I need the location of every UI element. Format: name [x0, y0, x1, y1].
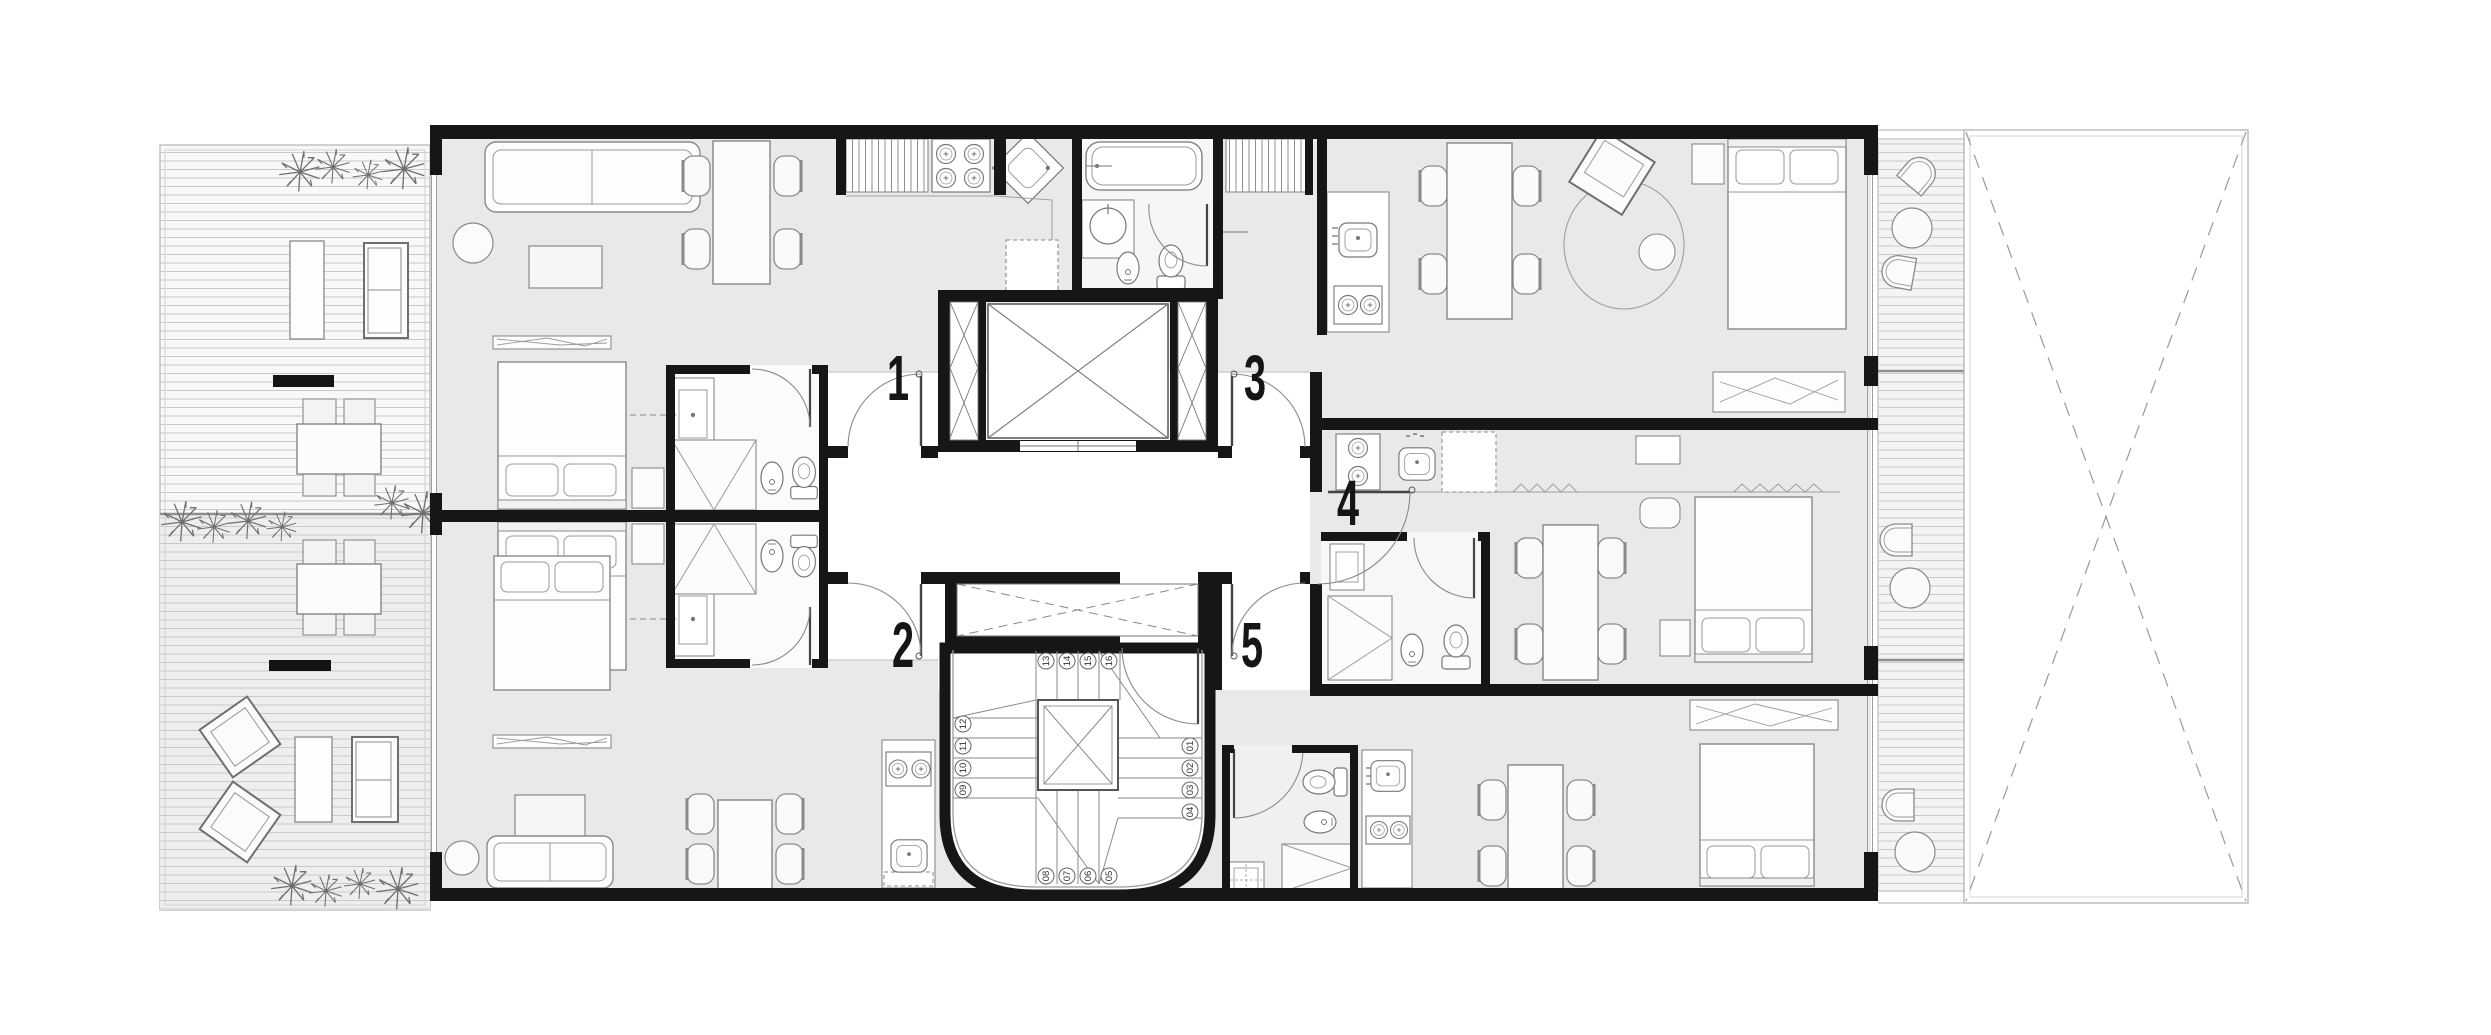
bidet — [1401, 634, 1423, 666]
balcony-table — [1890, 568, 1930, 608]
entry-closet — [1226, 139, 1307, 192]
floor-plan-page: 01 02 03 04 05 06 07 08 09 10 11 12 13 1… — [0, 0, 2491, 1035]
balcony-table — [1895, 832, 1935, 872]
kitchen — [882, 740, 935, 888]
side-table — [445, 841, 479, 875]
shower — [672, 440, 756, 510]
outdoor-sofa — [352, 737, 398, 822]
step-number: 05 — [1104, 871, 1115, 882]
step-number: 09 — [958, 785, 969, 796]
stair-column — [1038, 700, 1118, 790]
coffee-table — [515, 795, 585, 838]
refrigerator-dashed — [1442, 432, 1496, 492]
sofa — [485, 142, 700, 212]
balcony-chair — [1880, 524, 1912, 556]
double-bed — [1728, 139, 1846, 329]
dining-table — [1508, 765, 1563, 895]
bidet — [1304, 811, 1336, 833]
side-table — [453, 223, 493, 263]
kitchen — [1327, 192, 1389, 332]
outdoor-table — [297, 564, 381, 614]
kitchen-counter — [846, 139, 928, 192]
service-shaft — [1178, 302, 1206, 440]
step-number: 12 — [958, 719, 969, 730]
side-table — [1639, 234, 1675, 270]
nightstand — [1660, 620, 1690, 656]
dining-table — [1543, 525, 1598, 680]
step-number: 16 — [1104, 656, 1115, 667]
step-number: 15 — [1083, 656, 1094, 667]
step-number: 10 — [958, 763, 969, 774]
dining-table — [1447, 143, 1512, 319]
outdoor-table — [297, 424, 381, 474]
unit-label-1: 1 — [887, 344, 909, 415]
toilet — [1303, 768, 1347, 796]
tv-board — [1713, 372, 1845, 412]
tv-board — [493, 735, 611, 748]
dining-table — [718, 800, 772, 896]
bidet — [1117, 252, 1139, 284]
step-number: 01 — [1185, 741, 1196, 752]
wall-unit4-unit5 — [1310, 684, 1878, 696]
double-bed — [494, 556, 610, 690]
balcony-chair — [1882, 789, 1914, 821]
kitchen — [1362, 750, 1412, 888]
step-number: 07 — [1062, 871, 1073, 882]
step-number: 13 — [1041, 656, 1052, 667]
outdoor-sofa — [364, 243, 408, 338]
sun-lounger — [290, 241, 324, 339]
wall-unit3-unit4 — [1320, 418, 1878, 430]
bidet — [761, 462, 783, 494]
bathtub — [1086, 142, 1202, 190]
washbasin — [1330, 544, 1364, 590]
double-bed — [1695, 497, 1812, 662]
toilet — [791, 535, 818, 577]
right-balcony — [1878, 139, 1964, 891]
washbasin — [1082, 200, 1134, 258]
service-shaft — [950, 302, 978, 440]
dining-set — [687, 794, 803, 896]
step-number: 08 — [1041, 871, 1052, 882]
planter-bar — [273, 375, 334, 387]
shower — [672, 524, 756, 594]
nightstand — [632, 524, 664, 564]
shower — [1282, 844, 1352, 892]
planter-bar — [269, 660, 331, 671]
tv-board — [1690, 700, 1838, 730]
wall-top — [430, 125, 1878, 139]
dining-table — [713, 141, 770, 284]
double-bed — [1700, 744, 1814, 886]
step-number: 02 — [1185, 763, 1196, 774]
bidet — [761, 540, 783, 572]
step-number: 14 — [1062, 656, 1073, 667]
tv-board — [493, 336, 611, 349]
kitchen-sink — [1399, 448, 1435, 480]
wall-mid-left — [430, 510, 828, 522]
unit-label-2: 2 — [892, 611, 914, 682]
unit-label-5: 5 — [1241, 611, 1263, 682]
toilet — [1442, 625, 1470, 669]
floor-plan-drawing: 01 02 03 04 05 06 07 08 09 10 11 12 13 1… — [0, 0, 2491, 1035]
unit-label-3: 3 — [1244, 344, 1266, 415]
kitchen-sink — [891, 840, 927, 872]
unit-label-4: 4 — [1337, 469, 1359, 540]
kitchen-sink — [1371, 761, 1405, 792]
stool — [1640, 498, 1680, 528]
elevator-core — [950, 302, 1206, 451]
double-bed — [498, 362, 626, 510]
coffee-table — [529, 246, 602, 288]
stair-core: 01 02 03 04 05 06 07 08 09 10 11 12 13 1… — [945, 584, 1210, 895]
kitchen-sink — [1339, 223, 1377, 257]
nightstand — [1692, 144, 1724, 184]
shower — [1328, 596, 1392, 680]
toilet — [791, 457, 818, 499]
left-terrace — [160, 145, 443, 910]
refrigerator-dashed — [1006, 240, 1058, 294]
sofa — [487, 836, 613, 888]
balcony-table — [1892, 208, 1932, 248]
step-number: 04 — [1185, 807, 1196, 818]
step-number: 03 — [1185, 785, 1196, 796]
toilet — [1157, 245, 1185, 289]
step-number: 06 — [1083, 871, 1094, 882]
nightstand — [632, 468, 664, 508]
counter-appliance — [1636, 436, 1680, 464]
sun-lounger — [295, 737, 332, 822]
step-number: 11 — [958, 741, 969, 751]
